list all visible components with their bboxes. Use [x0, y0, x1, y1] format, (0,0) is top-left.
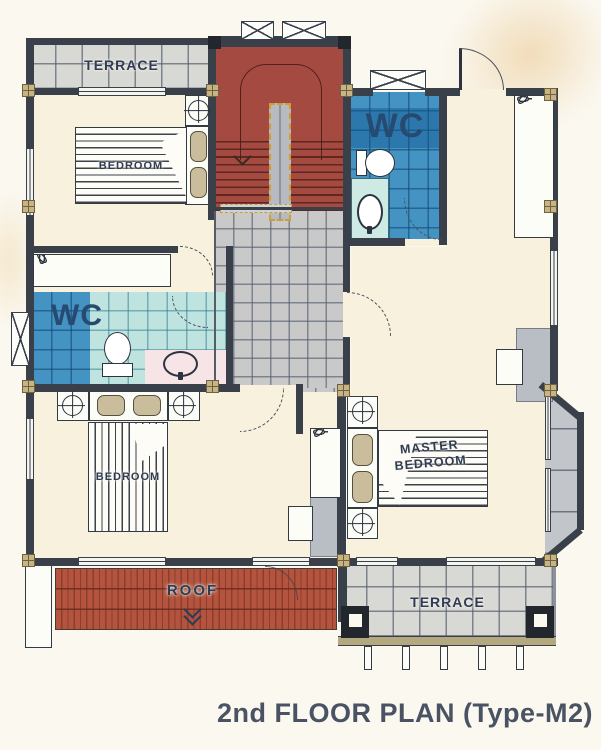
- wall-stairs-top: [208, 36, 351, 47]
- lamp-icon: [352, 401, 373, 422]
- sink-icon: [357, 194, 383, 230]
- column-post: [544, 200, 557, 213]
- window: [356, 557, 398, 566]
- window-marker-icon: [11, 312, 30, 366]
- column-post: [206, 380, 219, 393]
- bedroom-bottom-label: BEDROOM: [88, 471, 168, 483]
- terrace-column: [516, 646, 524, 670]
- column-post: [544, 384, 557, 397]
- terrace-bottom-label: TERRACE: [390, 594, 505, 610]
- hanger-icon: [313, 429, 325, 435]
- wall-corridor-a: [343, 246, 350, 292]
- tap-icon: [367, 226, 372, 234]
- pillow: [352, 434, 373, 466]
- window: [78, 557, 166, 566]
- column-post: [337, 554, 350, 567]
- lamp-icon: [62, 395, 83, 416]
- hanger-icon: [517, 96, 529, 102]
- column-post: [544, 88, 557, 101]
- pillow: [190, 167, 207, 198]
- wall-wc-mid-right: [226, 246, 233, 392]
- window: [26, 418, 34, 480]
- wall-left: [26, 38, 34, 566]
- roof-label: ROOF: [150, 582, 235, 599]
- lamp-icon: [173, 395, 194, 416]
- stairs-corner-block-right: [338, 36, 351, 49]
- hanger-row: [34, 255, 37, 257]
- door-opening: [460, 89, 506, 96]
- page-title: 2nd FLOOR PLAN (Type-M2): [215, 698, 595, 729]
- window-marker-icon: [282, 21, 326, 40]
- column-post: [22, 380, 35, 393]
- lamp-icon: [188, 100, 209, 121]
- hallway-left-edge: [214, 211, 216, 388]
- toilet-icon: [102, 363, 133, 377]
- hanger-row: [515, 96, 518, 98]
- column-post: [340, 84, 353, 97]
- floor-plan-canvas: TERRACE BEDROOM WC WC BEDROOM MASTER BED…: [0, 0, 601, 750]
- wall-terrace-top: [26, 38, 215, 45]
- terrace-corner-post-inner: [534, 614, 547, 627]
- chair: [496, 349, 523, 385]
- terrace-corner-post-inner: [349, 614, 362, 627]
- door-opening: [405, 239, 439, 246]
- terrace-column: [364, 646, 372, 670]
- toilet-icon: [104, 332, 131, 365]
- wc-mid-label: WC: [38, 299, 116, 333]
- window: [446, 557, 536, 566]
- bay-window-pane: [545, 396, 551, 460]
- stair-hall-divider: [216, 207, 343, 210]
- bedroom-top-label: BEDROOM: [75, 160, 187, 172]
- column-post: [22, 554, 35, 567]
- roof-side-structure: [25, 560, 52, 648]
- wc-top-label: WC: [351, 107, 439, 146]
- lamp-icon: [352, 513, 373, 534]
- column-post: [544, 554, 557, 567]
- hanger-row: [311, 429, 314, 431]
- desk: [288, 506, 313, 541]
- window: [550, 250, 558, 326]
- closet-hall: [33, 254, 171, 287]
- terrace-column: [402, 646, 410, 670]
- tap-icon: [178, 372, 183, 380]
- column-post: [206, 84, 219, 97]
- wall-hall-stub: [296, 384, 303, 434]
- pillow: [133, 395, 161, 416]
- wardrobe-master: [310, 428, 341, 498]
- window: [252, 557, 310, 566]
- hallway-floor: [216, 211, 345, 388]
- stairs-corner-block-left: [208, 36, 221, 49]
- column-post: [22, 84, 35, 97]
- pillow: [352, 471, 373, 503]
- terrace-bottom-beam: [338, 636, 556, 646]
- window-marker-icon: [370, 70, 426, 90]
- wall-wc-top-bottom: [343, 238, 405, 246]
- column-post: [337, 384, 350, 397]
- wall-bay-right: [577, 412, 584, 530]
- wall-closet-top: [26, 246, 178, 253]
- pillow: [190, 131, 207, 162]
- terrace-top-label: TERRACE: [30, 57, 213, 73]
- column-post: [22, 200, 35, 213]
- window-marker-icon: [241, 21, 274, 40]
- terrace-column: [478, 646, 486, 670]
- bay-window-pane: [545, 468, 551, 532]
- toilet-icon: [365, 149, 395, 177]
- window: [78, 87, 166, 96]
- wardrobe-dressing: [514, 95, 554, 238]
- wall-stairs-right: [343, 36, 351, 246]
- terrace-column: [440, 646, 448, 670]
- pillow: [97, 395, 125, 416]
